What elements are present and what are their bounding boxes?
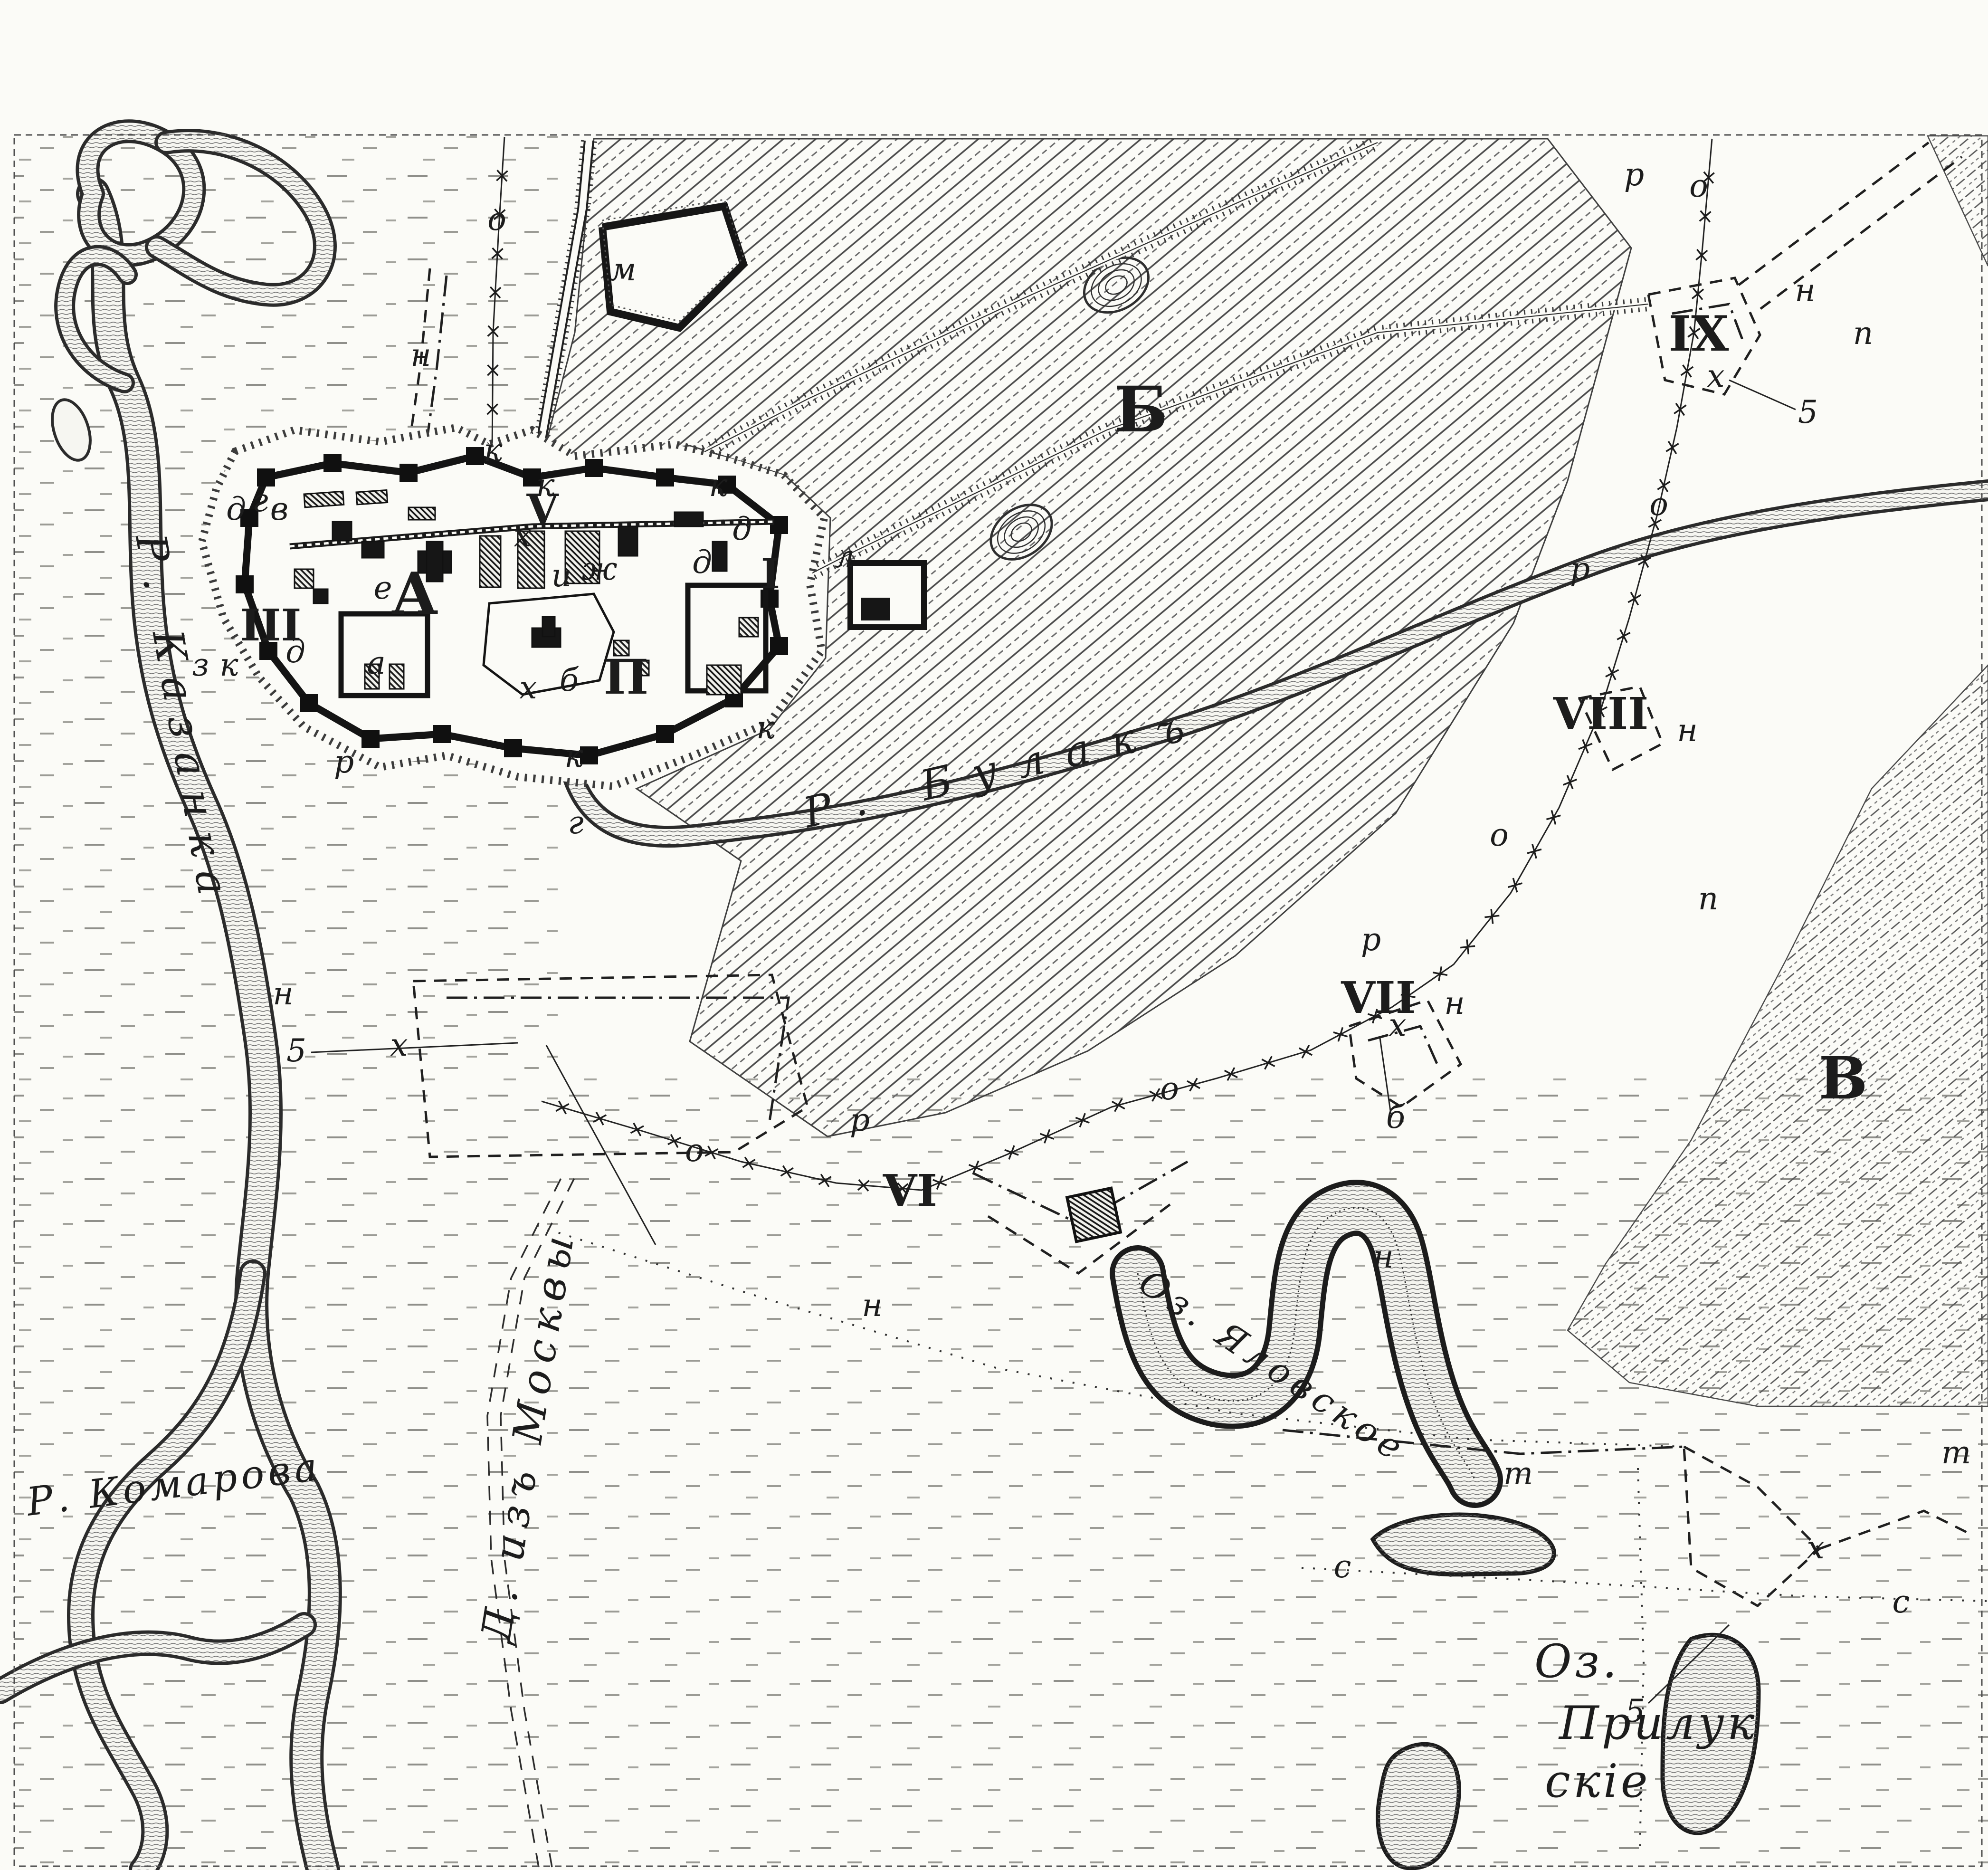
kremlin-tower: [236, 575, 254, 593]
map-canvas: АБВПIIIIVVIVIIVIIIIXаббвггддддежзикккккк…: [0, 0, 1988, 1870]
map-label: п: [1698, 880, 1719, 917]
map-label: IX: [1669, 305, 1730, 363]
map-label: х: [519, 669, 537, 706]
map-label: к: [219, 647, 238, 683]
map-label: р: [1570, 551, 1590, 587]
map-label: н: [862, 1287, 882, 1324]
map-label: I: [761, 550, 780, 598]
map-page: Изобр.1. Планъ Кремля и части города Каз…: [0, 0, 1988, 1870]
map-label: н: [1795, 272, 1815, 309]
kremlin-building: [707, 665, 741, 695]
map-label: н: [1677, 712, 1697, 749]
map-label: г: [568, 804, 583, 841]
map-label: р: [1361, 921, 1381, 958]
map-label: н: [1444, 985, 1465, 1021]
map-label: а: [367, 645, 385, 681]
kremlin-tower: [504, 739, 522, 757]
map-label: х: [1707, 358, 1724, 394]
map-label: х: [1807, 1529, 1824, 1566]
map-label: е: [373, 570, 392, 606]
map-label: р: [850, 1102, 870, 1138]
map-label: р: [1624, 156, 1644, 193]
map-label: о: [1490, 817, 1509, 853]
kremlin-tower: [433, 725, 451, 743]
redoubt-vi-battery: [1067, 1188, 1121, 1242]
map-label: о: [1160, 1070, 1179, 1107]
map-label: к: [484, 432, 503, 468]
map-label: о: [1649, 486, 1668, 523]
kremlin-building: [314, 589, 328, 603]
map-label: и: [552, 557, 572, 594]
kremlin-building: [356, 490, 388, 505]
map-label: с: [1334, 1548, 1351, 1585]
map-label: р: [334, 744, 354, 780]
kremlin-building: [390, 664, 404, 689]
map-label: м: [610, 251, 637, 288]
kremlin-building: [333, 522, 352, 541]
map-label: о: [685, 1132, 704, 1169]
kremlin-tower: [770, 637, 788, 655]
kremlin-tower: [400, 464, 418, 482]
map-label: Б: [1114, 373, 1168, 447]
kremlin-tower: [656, 725, 674, 743]
map-label: д: [285, 633, 305, 670]
map-label: т: [1941, 1434, 1971, 1471]
map-label: П: [604, 649, 648, 705]
map-label: н: [1373, 1239, 1393, 1275]
map-label: т: [1503, 1455, 1533, 1492]
map-label: VI: [883, 1165, 937, 1216]
map-label: б: [560, 662, 579, 698]
map-label: ж: [581, 551, 617, 587]
map-label: к: [564, 738, 583, 774]
map-label: скіе: [1545, 1755, 1651, 1808]
map-label: VIII: [1553, 688, 1649, 739]
map-label: с: [1893, 1584, 1910, 1620]
kremlin-building: [739, 618, 758, 637]
kremlin-building: [542, 617, 555, 637]
kremlin-tower: [656, 468, 674, 487]
kremlin-building: [304, 491, 344, 507]
map-label: б: [1386, 1099, 1406, 1135]
map-label: В: [1818, 1044, 1867, 1112]
map-label: в: [270, 491, 288, 527]
kremlin-building: [409, 507, 435, 520]
kremlin-tower: [300, 694, 318, 712]
kremlin-building: [362, 542, 384, 558]
kremlin-building: [618, 526, 637, 556]
kremlin-building: [675, 512, 703, 526]
map-label: п: [1853, 315, 1874, 352]
map-label: к: [756, 709, 775, 746]
map-label: г: [252, 482, 268, 519]
map-label: х: [390, 1027, 408, 1063]
map-label: д: [226, 491, 246, 527]
map-label: 5: [286, 1032, 306, 1069]
kremlin-building: [713, 542, 727, 571]
map-label: к: [536, 467, 555, 504]
map-label: о: [487, 201, 506, 238]
map-label: л: [835, 538, 855, 575]
kremlin-tower: [585, 459, 603, 477]
kremlin-tower: [466, 447, 484, 465]
map-label: н: [410, 337, 431, 373]
map-label: о: [1689, 168, 1708, 204]
kremlin-building: [480, 536, 501, 587]
map-label: Прилук: [1558, 1697, 1757, 1750]
map-label: н: [273, 975, 293, 1012]
kremlin-building: [295, 569, 314, 588]
map-label: к: [709, 467, 728, 504]
map-label: д: [732, 511, 752, 547]
map-label: х: [1389, 1007, 1406, 1043]
kremlin-tower: [361, 730, 380, 748]
outwork-l-building: [861, 598, 890, 620]
map-label: 5: [1798, 394, 1818, 430]
map-label: д: [692, 544, 712, 581]
kremlin-tower: [323, 454, 342, 472]
map-label: х: [514, 517, 531, 554]
map-label: Оз.: [1534, 1635, 1620, 1688]
map-label: А: [391, 559, 438, 628]
